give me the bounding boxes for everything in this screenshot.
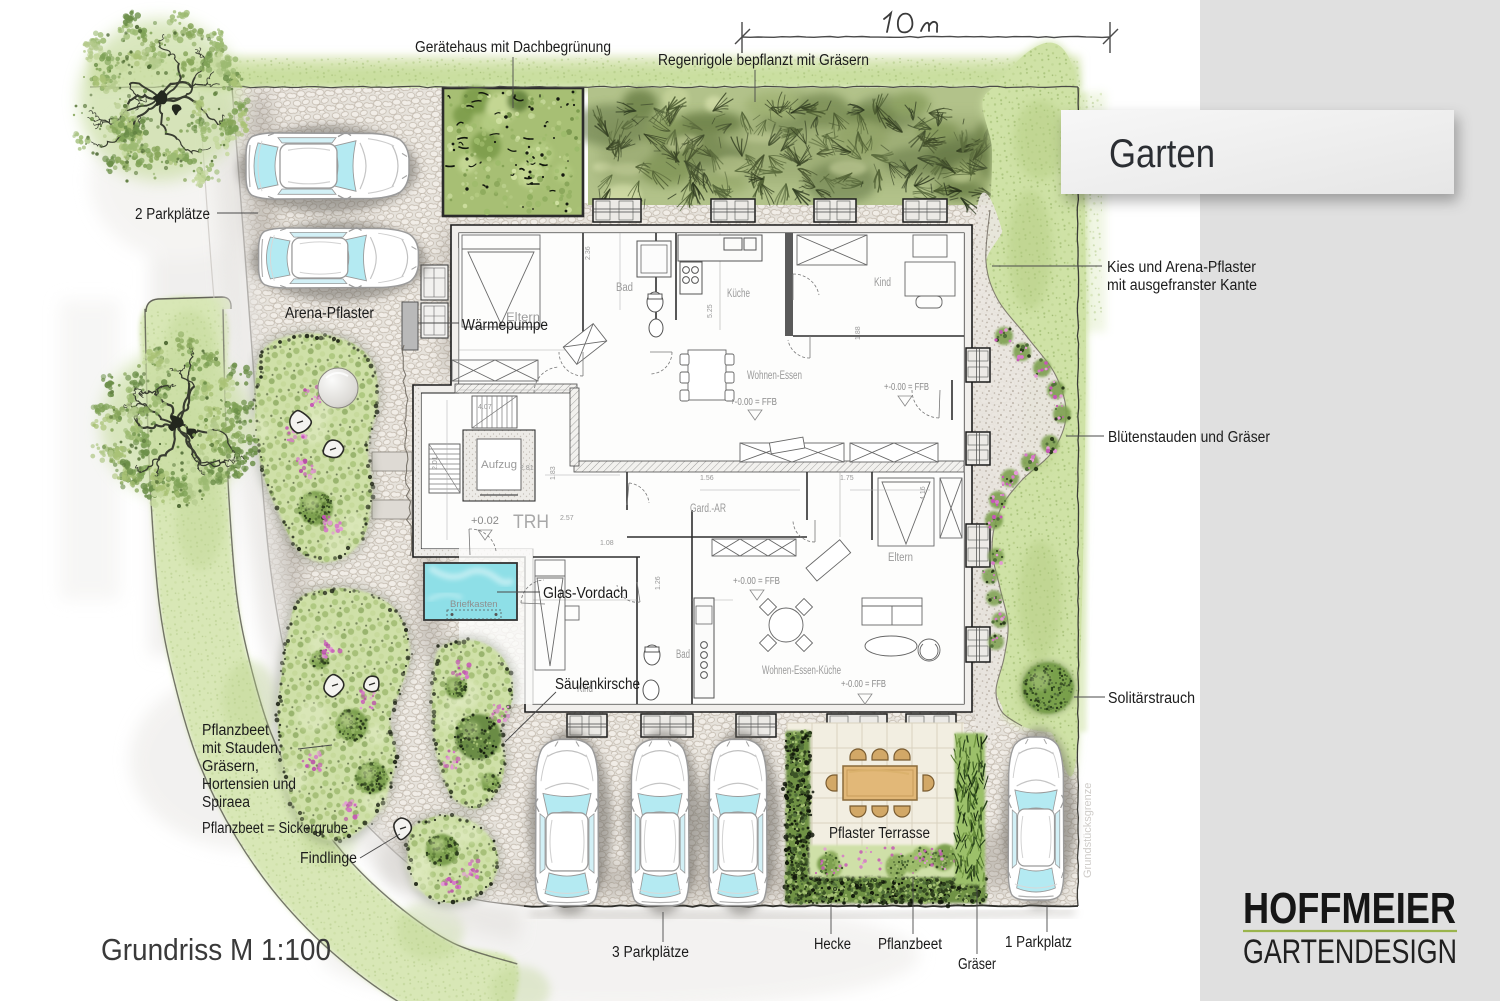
svg-text:Wohnen-Essen-Küche: Wohnen-Essen-Küche bbox=[762, 665, 841, 677]
svg-text:Gard.-AR: Gard.-AR bbox=[690, 503, 726, 515]
svg-text:4.16: 4.16 bbox=[920, 486, 927, 500]
svg-text:+-0.00 = FFB: +-0.00 = FFB bbox=[733, 576, 780, 587]
svg-text:Küche: Küche bbox=[727, 288, 750, 300]
svg-text:TRH: TRH bbox=[513, 512, 549, 533]
svg-text:1.08: 1.08 bbox=[600, 540, 614, 547]
svg-text:4.07: 4.07 bbox=[478, 404, 492, 411]
svg-text:5.25: 5.25 bbox=[707, 304, 714, 318]
svg-text:Eltern: Eltern bbox=[888, 552, 913, 564]
svg-text:+-0.00 = FFB: +-0.00 = FFB bbox=[841, 679, 886, 690]
svg-text:+-0.00 = FFB: +-0.00 = FFB bbox=[884, 382, 929, 393]
svg-text:Kind: Kind bbox=[874, 277, 891, 289]
svg-text:2.01: 2.01 bbox=[432, 456, 439, 470]
svg-text:1.75: 1.75 bbox=[840, 475, 854, 482]
svg-text:1.26: 1.26 bbox=[655, 576, 662, 590]
svg-text:Bad: Bad bbox=[616, 282, 633, 294]
svg-text:Bad: Bad bbox=[676, 649, 690, 661]
svg-text:1.88: 1.88 bbox=[855, 326, 862, 340]
svg-text:2.57: 2.57 bbox=[560, 515, 574, 522]
svg-text:Briefkasten: Briefkasten bbox=[450, 599, 498, 610]
svg-text:Pflaster Terrasse: Pflaster Terrasse bbox=[829, 825, 930, 842]
svg-text:+0.02: +0.02 bbox=[471, 515, 499, 527]
svg-text:2.36: 2.36 bbox=[585, 246, 592, 260]
svg-text:Wohnen-Essen: Wohnen-Essen bbox=[747, 370, 802, 382]
svg-text:1.56: 1.56 bbox=[700, 475, 714, 482]
svg-text:Grundstücksgrenze: Grundstücksgrenze bbox=[1082, 783, 1094, 878]
svg-text:+-0.00 = FFB: +-0.00 = FFB bbox=[730, 397, 777, 408]
svg-text:2.81: 2.81 bbox=[520, 465, 534, 472]
svg-text:Aufzug: Aufzug bbox=[481, 459, 517, 471]
svg-text:1.83: 1.83 bbox=[550, 466, 557, 480]
